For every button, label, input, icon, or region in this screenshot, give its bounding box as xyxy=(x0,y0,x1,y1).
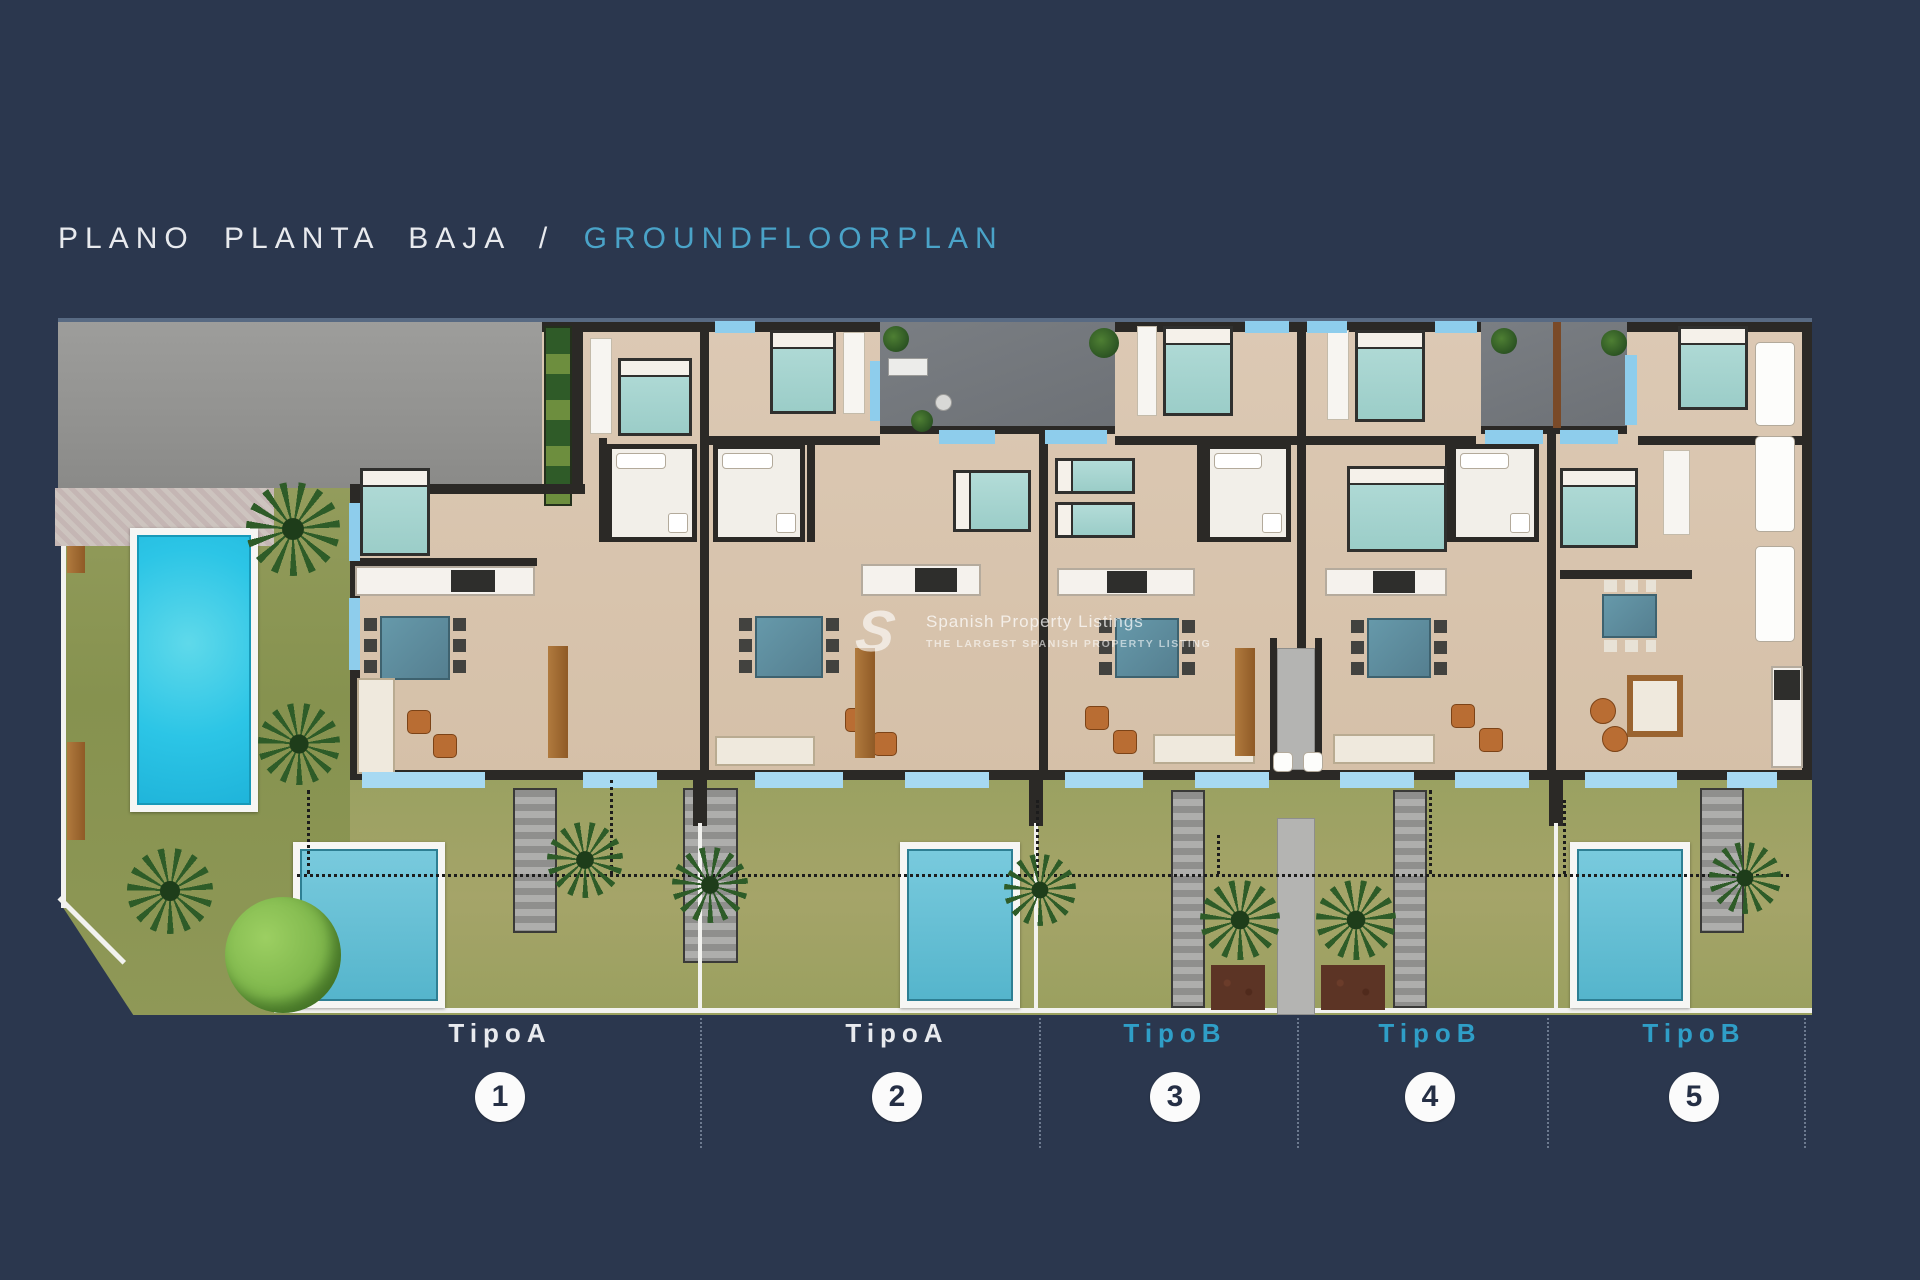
legend-unit-4-number: 4 xyxy=(1405,1072,1455,1122)
dotted-path-line xyxy=(1429,790,1432,874)
unit5-fixture xyxy=(1755,436,1795,532)
window-strip xyxy=(1435,321,1477,333)
sliding-door xyxy=(1065,772,1143,788)
legend-unit-3-number: 3 xyxy=(1150,1072,1200,1122)
sliding-door xyxy=(905,772,989,788)
legend-separator xyxy=(1547,1018,1549,1148)
unit2-chairs xyxy=(826,618,839,678)
plunge-pool-2-water xyxy=(907,849,1013,1001)
entrance-staircase xyxy=(1171,790,1205,1008)
legend-unit-2-label: TipoA xyxy=(777,1018,1017,1049)
unit4-armchair xyxy=(1451,704,1475,728)
unit1-closet xyxy=(590,338,612,434)
plunge-pool-2 xyxy=(900,842,1020,1008)
corridor-fixture xyxy=(1273,752,1293,772)
sliding-door xyxy=(1340,772,1414,788)
garden-bottom-edge xyxy=(274,1008,1812,1013)
sliding-door xyxy=(755,772,843,788)
unit1-chairs xyxy=(453,618,466,680)
window-strip xyxy=(1245,321,1289,333)
patio-bench xyxy=(888,358,928,376)
unit3-entry-door xyxy=(1235,648,1255,756)
window-strip xyxy=(349,598,360,670)
unit3-closet xyxy=(1137,326,1157,416)
unit4-chairs xyxy=(1351,620,1364,678)
dotted-path-line xyxy=(1563,800,1566,874)
window-strip xyxy=(1307,321,1347,333)
wall-unit5-living xyxy=(1560,570,1692,579)
unit4-armchair xyxy=(1479,728,1503,752)
patio-bush xyxy=(911,410,933,432)
window-strip xyxy=(1560,430,1618,444)
plunge-pool-3 xyxy=(1570,842,1690,1008)
unit5-armchair xyxy=(1590,698,1616,724)
unit1-bed2 xyxy=(360,468,430,556)
patio-divider xyxy=(1553,322,1561,428)
watermark-name: Spanish Property Listings xyxy=(926,612,1144,632)
palm-tree xyxy=(246,482,340,576)
planter-strip xyxy=(544,326,572,506)
wall-bath-unit2 xyxy=(807,438,815,542)
sliding-door xyxy=(583,772,657,788)
unit5-cooktop xyxy=(1774,670,1800,700)
patio-bush xyxy=(1089,328,1119,358)
palm-tree xyxy=(672,847,748,923)
palm-tree xyxy=(1200,880,1280,960)
unit1-kitchen-counter xyxy=(355,566,535,596)
unit1-cooktop xyxy=(451,570,495,592)
palm-tree xyxy=(258,703,340,785)
wall-bath-unit3 xyxy=(1197,438,1205,542)
unit5-double-bed xyxy=(1560,468,1638,548)
legend-unit-4-label: TipoB xyxy=(1310,1018,1550,1049)
unit2-bed xyxy=(770,330,836,414)
wall-bedroom1 xyxy=(572,322,583,488)
unit4-closet xyxy=(1327,330,1349,420)
unit3-twin-bed xyxy=(1055,502,1135,538)
legend-unit-1-label: TipoA xyxy=(380,1018,620,1049)
unit4-bathroom xyxy=(1451,444,1539,542)
unit5-chairs xyxy=(1604,580,1656,592)
unit2-cooktop xyxy=(915,568,957,592)
unit2-closet xyxy=(843,332,865,414)
unit4-dining-table xyxy=(1367,618,1431,678)
terrace-divider xyxy=(1549,778,1563,826)
unit2-sofa xyxy=(715,736,815,766)
unit1-armchair xyxy=(433,734,457,758)
main-pool-water xyxy=(137,535,251,805)
garden-divider-fence xyxy=(1554,823,1558,1008)
patio-bush xyxy=(883,326,909,352)
palm-tree xyxy=(1004,854,1076,926)
unit1-sofa xyxy=(357,678,395,774)
legend-unit-5-label: TipoB xyxy=(1574,1018,1814,1049)
sliding-door xyxy=(1455,772,1529,788)
unit4-double-bed xyxy=(1347,466,1447,552)
corridor-fixture xyxy=(1303,752,1323,772)
unit1-bathroom xyxy=(607,444,697,542)
legend-separator xyxy=(700,1018,702,1148)
dotted-path-line xyxy=(1217,835,1220,874)
legend-unit-2-number: 2 xyxy=(872,1072,922,1122)
mulch-bed xyxy=(1211,965,1265,1010)
unit5-sofa xyxy=(1627,675,1683,737)
palm-tree xyxy=(1709,842,1781,914)
title-separator: / xyxy=(539,222,554,255)
legend-separator xyxy=(1804,1018,1806,1148)
unit3-bed xyxy=(1163,326,1233,416)
patio-bush xyxy=(1601,330,1627,356)
sliding-door xyxy=(362,772,485,788)
window-strip xyxy=(1625,355,1637,425)
palm-tree xyxy=(547,822,623,898)
unit5-bed xyxy=(1678,326,1748,410)
unit5-fixture xyxy=(1755,546,1795,642)
legend-unit-3-label: TipoB xyxy=(1055,1018,1295,1049)
window-strip xyxy=(349,503,360,561)
unit4-bed xyxy=(1355,330,1425,422)
window-strip xyxy=(1045,430,1107,444)
terrace-divider xyxy=(693,778,707,826)
unit1-bed xyxy=(618,358,692,436)
sliding-door xyxy=(1585,772,1677,788)
unit1-entry-door xyxy=(548,646,568,758)
floor-plan-graphic xyxy=(55,318,1812,1015)
window-strip xyxy=(715,321,755,333)
unit4-cooktop xyxy=(1373,571,1415,593)
unit3-armchair xyxy=(1113,730,1137,754)
palm-tree xyxy=(127,848,213,934)
wood-deck xyxy=(67,742,85,840)
plunge-pool-3-water xyxy=(1577,849,1683,1001)
palm-tree xyxy=(1316,880,1396,960)
unit3-bathroom xyxy=(1205,444,1291,542)
title-spanish: PLANO PLANTA BAJA xyxy=(58,222,510,255)
unit2-bathroom xyxy=(713,444,805,542)
unit1-armchair xyxy=(407,710,431,734)
unit3-cooktop xyxy=(1107,571,1147,593)
unit4-chairs xyxy=(1434,620,1447,678)
mulch-bed xyxy=(1321,965,1385,1010)
window-strip xyxy=(939,430,995,444)
dotted-path-line xyxy=(307,790,310,874)
title-english: GROUNDFLOORPLAN xyxy=(584,222,1004,255)
unit3-armchair xyxy=(1085,706,1109,730)
unit1-chairs xyxy=(364,618,377,680)
patio-stone xyxy=(935,394,952,411)
patio-bush xyxy=(1491,328,1517,354)
watermark-logo: S xyxy=(852,598,898,665)
unit5-closet xyxy=(1663,450,1690,535)
unit1-dining-table xyxy=(380,616,450,680)
window-strip xyxy=(870,361,880,421)
wall-bath-unit1 xyxy=(599,438,607,542)
unit2-bed2 xyxy=(953,470,1031,532)
round-tree xyxy=(225,897,341,1013)
garden-fence xyxy=(61,488,66,908)
wall-right xyxy=(1802,322,1812,780)
unit2-chairs xyxy=(739,618,752,678)
unit4-sofa xyxy=(1333,734,1435,764)
legend-unit-5-number: 5 xyxy=(1669,1072,1719,1122)
window-strip xyxy=(1485,430,1543,444)
floor-plan-page: PLANO PLANTA BAJA / GROUNDFLOORPLAN xyxy=(0,0,1920,1280)
unit5-armchair xyxy=(1602,726,1628,752)
wall-kitchen-unit1 xyxy=(355,558,537,566)
main-pool xyxy=(130,528,258,812)
unit3-twin-bed xyxy=(1055,458,1135,494)
entrance-walkway xyxy=(1277,818,1315,1015)
unit5-dining-table xyxy=(1602,594,1657,638)
sliding-door xyxy=(1195,772,1269,788)
watermark-tagline: THE LARGEST SPANISH PROPERTY LISTING xyxy=(926,638,1211,650)
wall-divider-unit1-2 xyxy=(700,322,709,780)
driveway xyxy=(58,322,542,488)
sliding-door xyxy=(1727,772,1777,788)
legend-unit-1-number: 1 xyxy=(475,1072,525,1122)
unit5-chairs xyxy=(1604,640,1656,652)
legend-separator xyxy=(1039,1018,1041,1148)
entrance-staircase xyxy=(1393,790,1427,1008)
unit2-dining-table xyxy=(755,616,823,678)
page-title: PLANO PLANTA BAJA / GROUNDFLOORPLAN xyxy=(58,222,1004,256)
unit5-fixture xyxy=(1755,342,1795,426)
unit2-armchair xyxy=(873,732,897,756)
legend-separator xyxy=(1297,1018,1299,1148)
